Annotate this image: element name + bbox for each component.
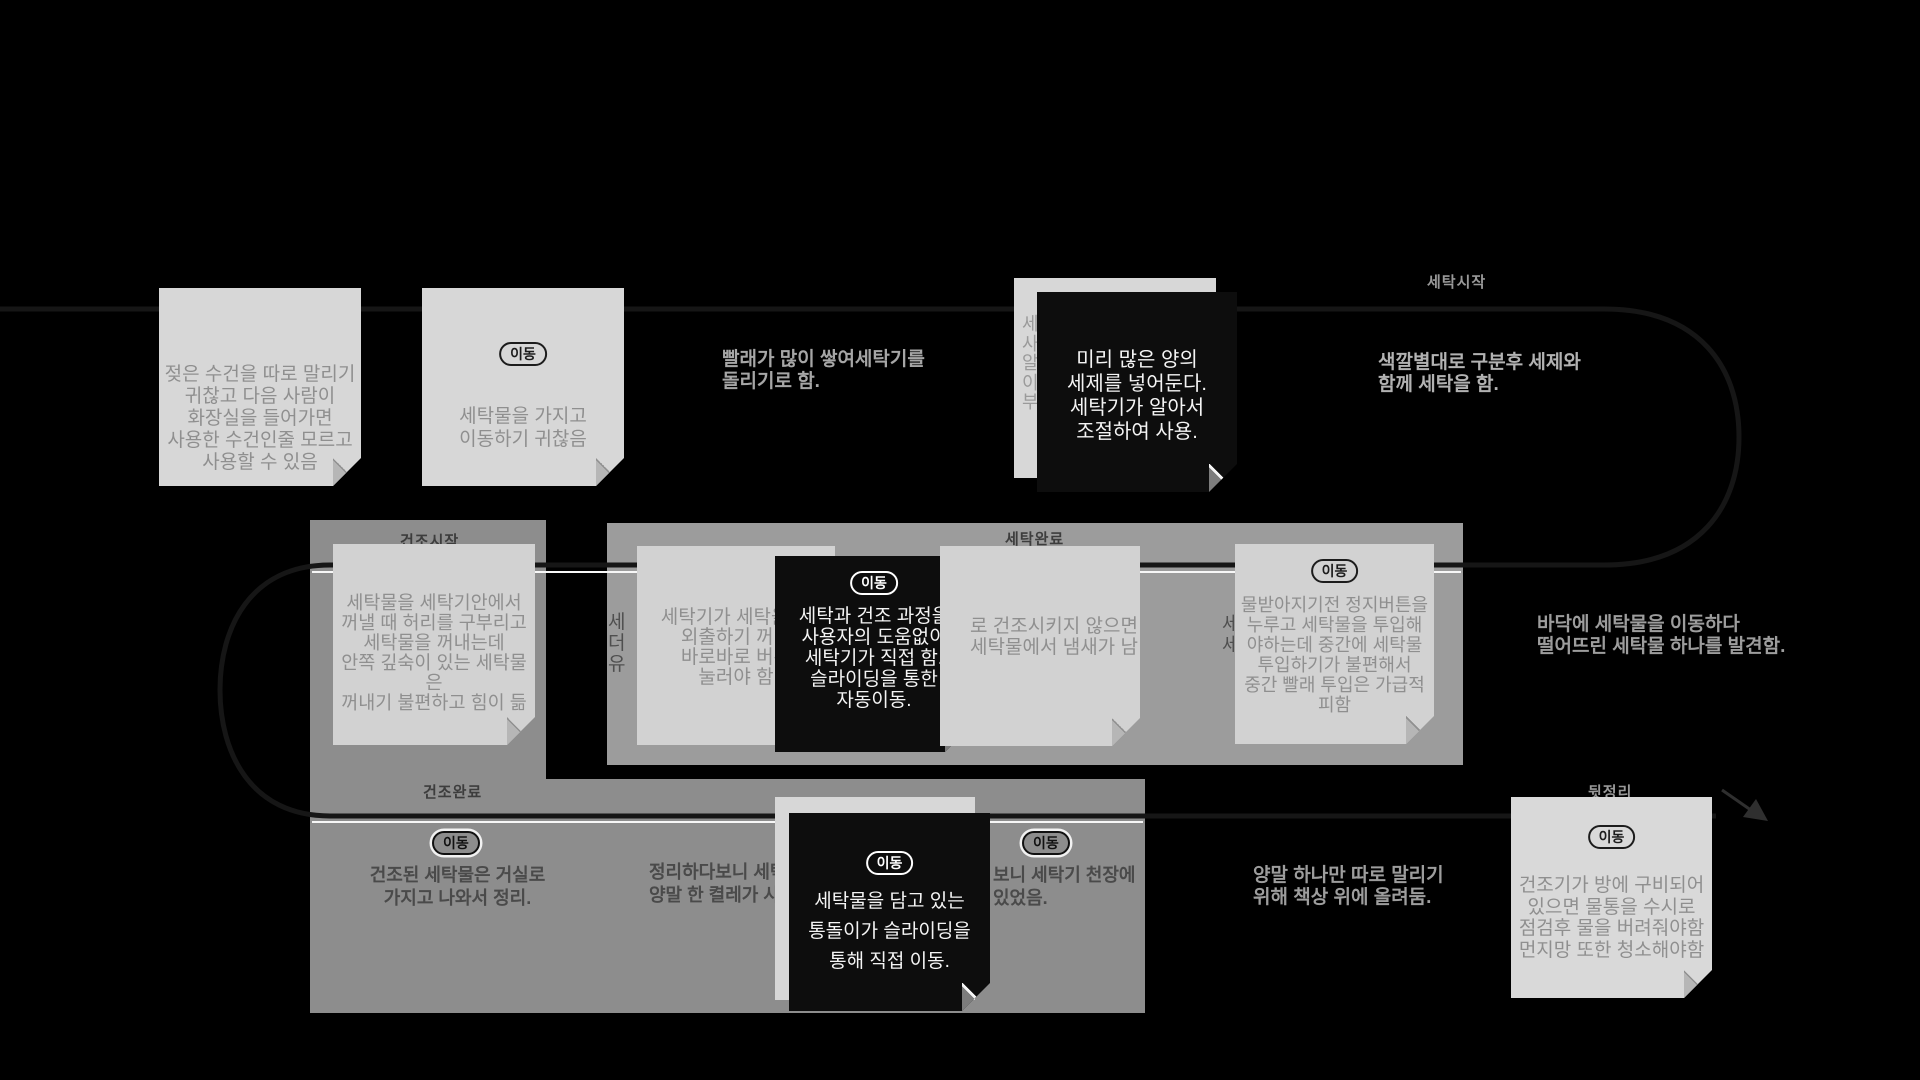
sticky-note-wet-towel[interactable]: 젖은 수건을 따로 말리기 귀찮고 다음 사람이 화장실을 들어가면 사용한 수… [159,288,361,486]
folded-corner [1209,464,1237,492]
lane-label-wash-done: 세탁완료 [1005,528,1064,549]
sticky-note-smell[interactable]: 로 건조시키지 않으면 세탁물에서 냄새가 남 [940,546,1140,746]
clipped-text-fragment: 세 더 유 [608,612,625,675]
move-badge: 이동 [866,851,914,875]
move-badge: 이동 [850,571,898,595]
move-badge: 이동 [499,342,547,366]
annotation-dropped-laundry: 바닥에 세탁물을 이동하다 떨어뜨린 세탁물 하나를 발견함. [1537,614,1785,658]
band-text-tidy-partial-left: 정리하다보니 세탁 양말 한 켤레가 사 [649,861,786,906]
note-text: 물받아지기전 정지버튼을 누루고 세탁물을 투입해 야하는데 중간에 세탁물 투… [1235,595,1434,715]
sticky-note-tub-moves[interactable]: 이동 세탁물을 담고 있는 통돌이가 슬라이딩을 통해 직접 이동. [789,813,990,1011]
move-badge: 이동 [432,831,480,855]
sticky-note-detergent-auto[interactable]: 미리 많은 양의 세제를 넣어둔다. 세탁기가 알아서 조절하여 사용. [1037,292,1237,492]
lane-label-dry-done: 건조완료 [423,781,482,802]
move-badge: 이동 [1588,825,1636,849]
clipped-text-fragment: 세 사 알 이 부 [1022,315,1039,413]
sticky-note-dryer-water[interactable]: 이동 건조기가 방에 구비되어 있으면 물통을 수시로 점검후 물을 버려줘야함… [1511,797,1712,998]
folded-corner [1684,970,1712,998]
band-text-tidy-partial-right: 보니 세탁기 천장에 있었음. [993,864,1135,909]
move-badge: 이동 [1022,831,1070,855]
note-text: 세탁물을 담고 있는 통돌이가 슬라이딩을 통해 직접 이동. [789,887,990,977]
move-badge: 이동 [1311,559,1359,583]
note-text: 건조기가 방에 구비되어 있으면 물통을 수시로 점검후 물을 버려줘야함 먼지… [1511,875,1712,961]
folded-corner [596,458,624,486]
sticky-note-carry-laundry[interactable]: 이동 세탁물을 가지고 이동하기 귀찮음 [422,288,624,486]
folded-corner [333,458,361,486]
journey-map-canvas: 세탁시작 건조시작 세탁완료 건조완료 뒷정리 빨래가 많이 쌓여세탁기를 돌리… [0,0,1920,1080]
note-text: 젖은 수건을 따로 말리기 귀찮고 다음 사람이 화장실을 들어가면 사용한 수… [159,364,361,474]
note-text: 미리 많은 양의 세제를 넣어둔다. 세탁기가 알아서 조절하여 사용. [1037,348,1237,444]
annotation-single-sock: 양말 하나만 따로 말리기 위해 책상 위에 올려둠. [1253,865,1444,909]
path-end-arrow-shaft [1722,790,1758,815]
sticky-note-bend-down[interactable]: 세탁물을 세탁기안에서 꺼낼 때 허리를 구부리고 세탁물을 꺼내는데 안쪽 깊… [333,544,535,745]
annotation-piled-laundry: 빨래가 많이 쌓여세탁기를 돌리기로 함. [722,349,925,393]
path-arc-right [1604,309,1739,565]
note-text: 세탁물을 세탁기안에서 꺼낼 때 허리를 구부리고 세탁물을 꺼내는데 안쪽 깊… [333,593,535,713]
annotation-sort-by-color: 색깔별대로 구분후 세제와 함께 세탁을 함. [1378,352,1581,396]
note-text: 로 건조시키지 않으면 세탁물에서 냄새가 남 [940,616,1140,658]
note-text: 세탁물을 가지고 이동하기 귀찮음 [422,405,624,451]
path-end-arrowhead [1743,799,1768,821]
band-text-carry-to-living-room: 건조된 세탁물은 거실로 가지고 나와서 정리. [365,864,550,909]
lane-label-wash-start: 세탁시작 [1427,271,1486,292]
sticky-note-mid-load[interactable]: 이동 물받아지기전 정지버튼을 누루고 세탁물을 투입해 야하는데 중간에 세탁… [1235,544,1434,744]
